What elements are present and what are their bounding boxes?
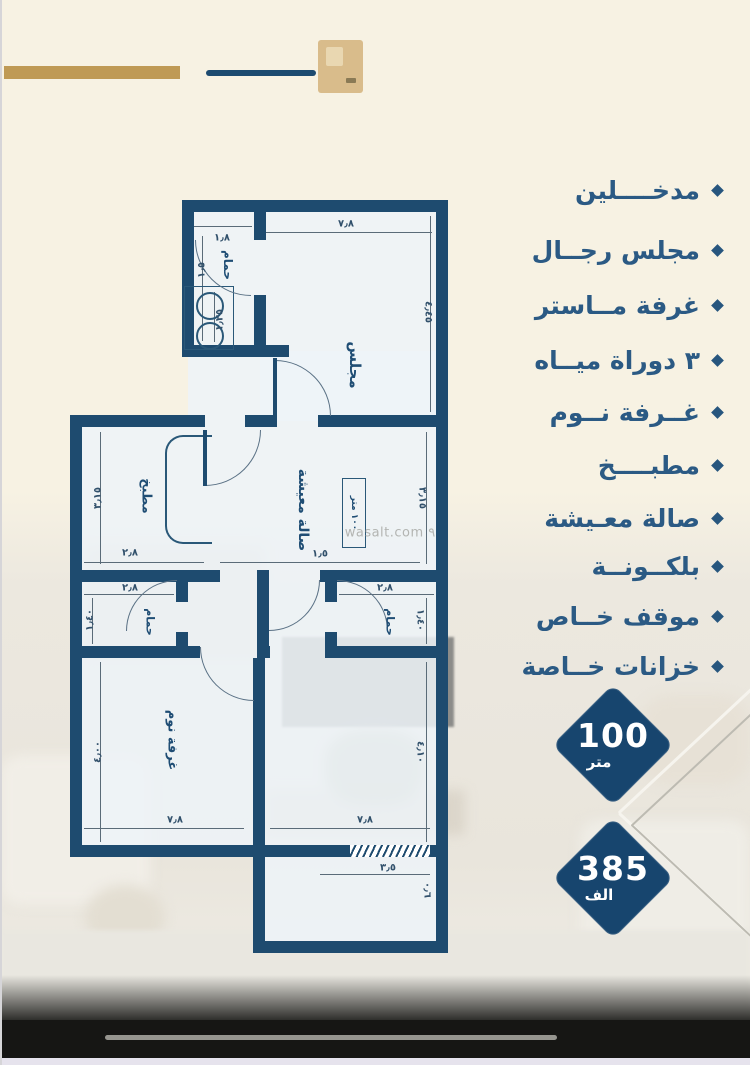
wall-segment [70,845,265,857]
diamond-bullet-icon [711,244,724,257]
diamond-bullet-icon [711,354,724,367]
diamond-bullet-icon [711,299,724,312]
feature-label: صالة معـيشة [544,506,700,531]
dim-line [84,828,244,829]
dim-line [192,226,252,227]
feature-label: بلكــونــة [591,554,700,579]
dim-line [84,562,204,563]
dim-label: ١٫٥ [197,262,208,278]
room-label-bedroom: غرفة نوم [165,710,180,770]
feature-label: مطبــــخ [598,453,700,478]
brand-logo [318,40,363,93]
list-item: مجلس رجــال [532,233,742,267]
wall-segment [257,570,269,658]
area-badge-value: 100 [577,719,649,752]
dim-label: ١٫٤٠ [85,609,96,631]
door-leaf [203,430,207,486]
feature-label: خزانات خــاصة [521,654,700,679]
progress-line [105,1035,557,1040]
dim-label: ٢٫٨ [122,548,138,559]
dim-label: ٧٫٨ [338,219,354,230]
wall-segment [176,582,188,602]
wall-segment [254,200,266,240]
dim-line [270,828,430,829]
area-badge-unit: متر [587,753,612,771]
wall-segment [257,646,270,658]
list-item: غرفة مــاستر [535,288,742,322]
dim-label: ٤٫١٠ [415,741,426,763]
wall-segment [253,857,265,953]
feature-label: مدخــــلين [575,178,700,203]
room-label-bath-top: حمام [221,250,235,280]
room-label-bath-right: حمام [384,608,397,636]
dim-label: ٣٫١٥ [417,487,428,509]
diamond-bullet-icon [711,610,724,623]
door-leaf [273,358,277,415]
dim-label: ٣٫١٥ [93,487,104,509]
dim-label: ١٫٥ [312,549,328,560]
dim-label: ٧٫٨ [167,815,183,826]
logo-dot-icon [346,78,356,83]
wall-segment [254,295,266,357]
room-label-bath-left: حمام [144,608,157,636]
window-hatch [350,845,430,857]
dim-label: ٧٫٨ [357,815,373,826]
wall-segment [70,415,205,427]
area-badge: 100 متر [552,684,674,806]
floor-balcony [259,851,442,947]
list-item: موقف خــاص [536,599,742,633]
bottom-band [0,1020,750,1060]
list-item: صالة معـيشة [544,501,742,535]
dim-line [320,874,430,875]
dim-label: ٤٫٠٠ [93,741,104,763]
dim-label: ١٫٢٥ [215,309,226,331]
price-badge-unit: الف [585,886,614,904]
dim-line [426,662,427,842]
feature-label: ٣ دوراة ميــاه [534,348,700,373]
diamond-bullet-icon [711,459,724,472]
dim-line [260,232,432,233]
room-label-majlis: مجلس [346,341,364,388]
diamond-bullet-icon [711,406,724,419]
diamond-bullet-icon [711,512,724,525]
dim-label: ١٫٤٠ [415,609,426,631]
feature-label: غرفة مــاستر [535,293,700,318]
navy-line [206,70,316,76]
list-item: مطبــــخ [598,448,742,482]
logo-mark-icon [326,47,343,66]
dim-line [426,598,427,644]
bottom-strip [0,1058,750,1065]
feature-label: موقف خــاص [536,604,700,629]
dim-line [220,562,420,563]
diamond-bullet-icon [711,660,724,673]
price-badge-value: 385 [577,852,649,885]
left-edge-line [0,0,2,1065]
list-item: غــرفة نــوم [550,395,742,429]
diamond-bullet-icon [711,184,724,197]
wall-segment [253,941,448,953]
wall-segment [70,646,200,658]
watermark: wasalt.com ٩ [345,526,436,541]
feature-list: مدخــــلين مجلس رجــال غرفة مــاستر ٣ دو… [430,155,742,715]
list-item: ٣ دوراة ميــاه [534,343,742,377]
dim-label: ٠٫٦ [422,882,433,898]
diamond-bullet-icon [711,560,724,573]
dim-label: ١٫٨ [214,233,230,244]
wall-segment [325,582,337,602]
gold-bar [4,66,180,79]
floor-plan: ٧٫٨ ١٫٨ ١٫٥ ١٫٢٥ ٤٫٤٥ ٣٫١٥ ٢٫٨ ٣٫١٥ ١٫٥ … [70,200,460,965]
list-item: مدخــــلين [575,173,742,207]
dim-label: ٢٫٨ [122,583,138,594]
room-label-living: صالة معيشة [295,469,311,551]
feature-label: مجلس رجــال [532,238,700,263]
bottom-fade [0,975,750,1025]
feature-label: غــرفة نــوم [550,400,700,425]
wall-segment [318,415,448,427]
dim-label: ٢٫٨ [377,583,393,594]
wall-segment [253,658,265,857]
real-estate-flyer: ٧٫٨ ١٫٨ ١٫٥ ١٫٢٥ ٤٫٤٥ ٣٫١٥ ٢٫٨ ٣٫١٥ ١٫٥ … [0,0,750,1065]
wall-segment [182,200,448,212]
wall-segment [70,417,82,857]
list-item: خزانات خــاصة [521,649,742,683]
wall-segment [70,570,220,582]
dim-label: ٣٫٥ [380,863,396,874]
room-label-kitchen: مطبخ [139,478,154,513]
wall-segment [245,415,277,427]
list-item: بلكــونــة [591,549,742,583]
price-badge: 385 الف [552,817,674,939]
